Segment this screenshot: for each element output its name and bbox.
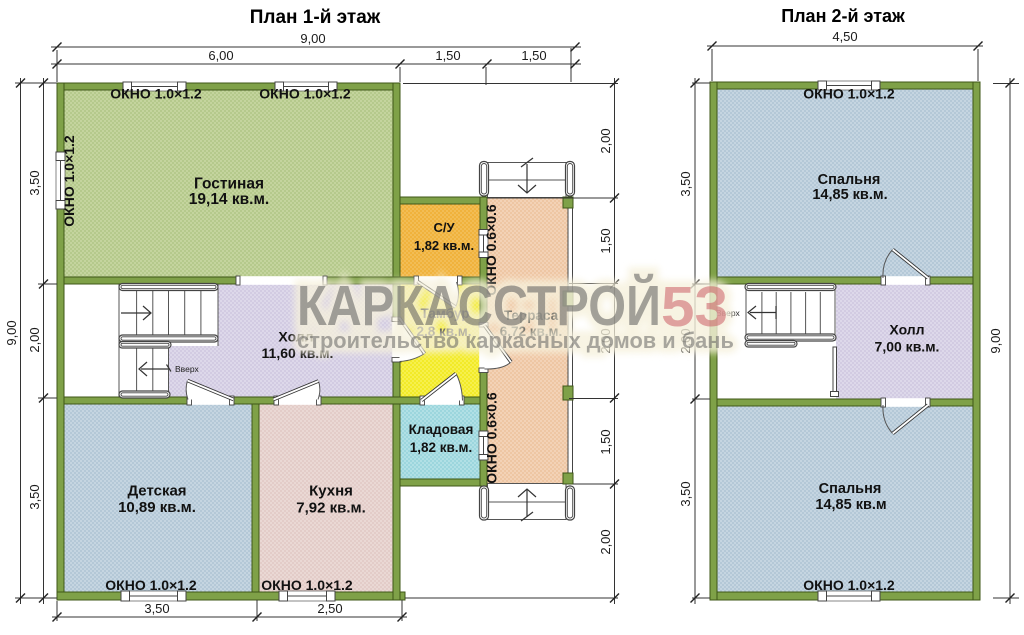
svg-text:Спальня: Спальня — [819, 481, 882, 497]
svg-text:Детская: Детская — [127, 483, 186, 500]
svg-text:3,50: 3,50 — [144, 601, 169, 616]
svg-text:3,50: 3,50 — [27, 170, 42, 195]
svg-text:Гостиная: Гостиная — [194, 176, 264, 193]
svg-text:ОКНО 1.0×1.2: ОКНО 1.0×1.2 — [803, 577, 895, 593]
svg-text:План 1-й этаж: План 1-й этаж — [250, 7, 381, 28]
svg-text:1,50: 1,50 — [598, 429, 613, 454]
svg-text:6,00: 6,00 — [208, 48, 233, 63]
svg-text:2,00: 2,00 — [598, 529, 613, 554]
svg-text:Холл: Холл — [889, 322, 924, 338]
svg-text:3,50: 3,50 — [27, 484, 42, 509]
svg-text:строительство каркасных домов: строительство каркасных домов и бань — [297, 328, 734, 353]
svg-text:Кухня: Кухня — [309, 483, 353, 500]
svg-text:ОКНО 1.0×1.2: ОКНО 1.0×1.2 — [105, 577, 197, 593]
svg-text:1,50: 1,50 — [435, 48, 460, 63]
svg-text:1,82 кв.м.: 1,82 кв.м. — [414, 238, 474, 253]
svg-text:7,00 кв.м.: 7,00 кв.м. — [875, 339, 940, 355]
svg-text:План 2-й этаж: План 2-й этаж — [781, 6, 905, 26]
svg-text:14,85 кв.м.: 14,85 кв.м. — [812, 187, 887, 203]
svg-text:4,50: 4,50 — [832, 29, 857, 44]
svg-text:2,00: 2,00 — [598, 128, 613, 153]
svg-text:9,00: 9,00 — [988, 328, 1003, 353]
svg-text:7,92 кв.м.: 7,92 кв.м. — [296, 500, 366, 517]
svg-text:С/У: С/У — [433, 220, 455, 235]
svg-text:3,50: 3,50 — [678, 481, 693, 506]
svg-text:1,50: 1,50 — [521, 48, 546, 63]
svg-text:14,85 кв.м: 14,85 кв.м — [815, 497, 886, 513]
svg-text:2,00: 2,00 — [27, 327, 42, 352]
svg-text:9,00: 9,00 — [4, 320, 19, 345]
svg-text:ОКНО 1.0×1.2: ОКНО 1.0×1.2 — [261, 577, 353, 593]
svg-text:19,14 кв.м.: 19,14 кв.м. — [189, 191, 269, 208]
svg-text:ОКНО 1.0×1.2: ОКНО 1.0×1.2 — [110, 85, 202, 101]
svg-text:ОКНО 1.0×1.2: ОКНО 1.0×1.2 — [803, 86, 895, 102]
svg-text:Кладовая: Кладовая — [409, 422, 474, 437]
svg-text:ОКНО 1.0×1.2: ОКНО 1.0×1.2 — [259, 85, 351, 101]
svg-text:9,00: 9,00 — [300, 31, 325, 46]
svg-text:3,50: 3,50 — [678, 171, 693, 196]
svg-text:1,82 кв.м.: 1,82 кв.м. — [410, 440, 473, 455]
svg-text:Спальня: Спальня — [818, 172, 881, 188]
svg-text:10,89 кв.м.: 10,89 кв.м. — [118, 499, 196, 516]
svg-text:Вверх: Вверх — [175, 364, 199, 374]
svg-text:1,50: 1,50 — [598, 228, 613, 253]
svg-text:2,50: 2,50 — [317, 601, 342, 616]
svg-text:ОКНО 1.0×1.2: ОКНО 1.0×1.2 — [61, 135, 77, 227]
svg-text:ОКНО 0.6×0.6: ОКНО 0.6×0.6 — [484, 392, 500, 484]
